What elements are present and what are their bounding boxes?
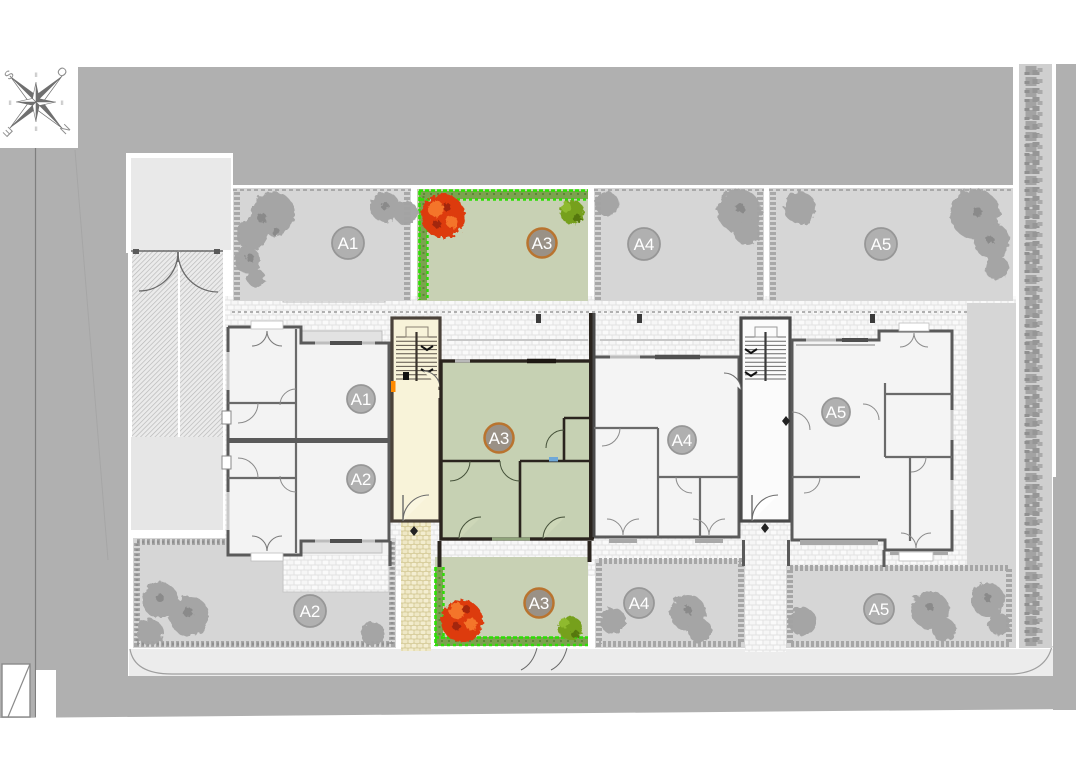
svg-text:A2: A2 (351, 470, 372, 489)
svg-text:A4: A4 (672, 431, 693, 450)
svg-text:E: E (0, 124, 16, 140)
svg-text:II: II (8, 101, 12, 107)
svg-text:A5: A5 (871, 235, 892, 254)
svg-text:A4: A4 (629, 594, 650, 613)
svg-text:A3: A3 (489, 429, 510, 448)
svg-text:II: II (34, 73, 38, 79)
svg-text:A5: A5 (869, 600, 890, 619)
svg-text:A3: A3 (529, 594, 550, 613)
svg-text:A5: A5 (826, 403, 847, 422)
svg-text:A4: A4 (634, 235, 655, 254)
svg-text:II: II (60, 101, 64, 107)
svg-text:O: O (54, 64, 71, 81)
svg-text:II: II (34, 127, 38, 133)
svg-text:A3: A3 (532, 234, 553, 253)
svg-text:A1: A1 (338, 234, 359, 253)
svg-text:A2: A2 (300, 602, 321, 621)
svg-text:N: N (57, 121, 73, 137)
svg-text:A1: A1 (351, 390, 372, 409)
